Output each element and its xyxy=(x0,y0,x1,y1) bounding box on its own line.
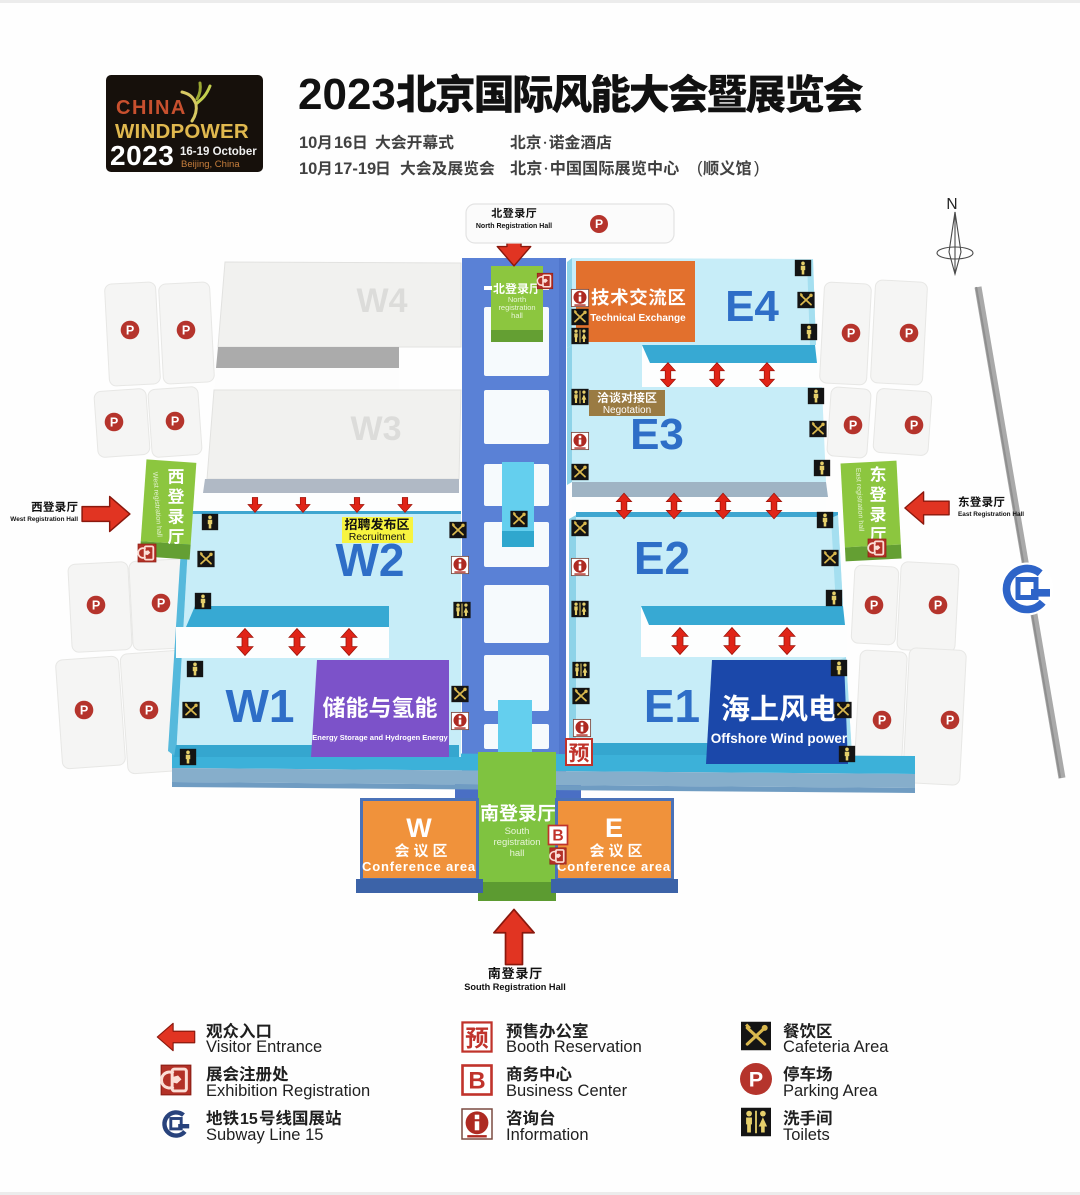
svg-text:South: South xyxy=(505,826,530,837)
svg-text:10: 10 xyxy=(299,134,317,152)
svg-text:North Registration Hall: North Registration Hall xyxy=(476,223,552,230)
svg-text:E1: E1 xyxy=(644,680,700,732)
svg-text:N: N xyxy=(946,196,957,213)
svg-text:W4: W4 xyxy=(357,282,408,320)
svg-text:(: ( xyxy=(697,159,703,177)
svg-text:Cafeteria Area: Cafeteria Area xyxy=(783,1038,889,1056)
svg-text:W3: W3 xyxy=(351,410,402,448)
svg-text:Recruitment: Recruitment xyxy=(349,531,406,543)
svg-text:South Registration Hall: South Registration Hall xyxy=(464,982,566,992)
svg-text:registration: registration xyxy=(494,837,541,848)
svg-text:Booth Reservation: Booth Reservation xyxy=(506,1038,642,1056)
svg-text:16: 16 xyxy=(334,134,352,152)
svg-text:Parking Area: Parking Area xyxy=(783,1082,878,1100)
svg-text:Information: Information xyxy=(506,1126,589,1144)
svg-text:Offshore Wind power: Offshore Wind power xyxy=(711,731,848,746)
svg-text:hall: hall xyxy=(510,848,525,859)
svg-text:hall: hall xyxy=(511,311,523,320)
svg-text:W1: W1 xyxy=(226,680,295,732)
svg-text:17-19: 17-19 xyxy=(334,160,376,178)
svg-text:W: W xyxy=(406,813,432,843)
svg-text:Business Center: Business Center xyxy=(506,1082,628,1100)
svg-text:Energy Storage and Hydrogen En: Energy Storage and Hydrogen Energy xyxy=(312,733,448,742)
svg-text:Negotation: Negotation xyxy=(603,405,651,416)
svg-text:E: E xyxy=(605,813,623,843)
svg-text:2023: 2023 xyxy=(110,140,174,171)
svg-text:E2: E2 xyxy=(634,532,690,584)
svg-text:Toilets: Toilets xyxy=(783,1126,830,1144)
svg-text:): ) xyxy=(754,159,760,177)
svg-text:Conference area: Conference area xyxy=(557,859,671,874)
svg-text:E4: E4 xyxy=(725,282,779,331)
svg-text:Beijing, China: Beijing, China xyxy=(181,159,240,170)
svg-text:West Registration Hall: West Registration Hall xyxy=(10,516,78,523)
svg-text:2023: 2023 xyxy=(298,70,396,119)
svg-text:Subway Line 15: Subway Line 15 xyxy=(206,1126,323,1144)
svg-text:Visitor Entrance: Visitor Entrance xyxy=(206,1038,322,1056)
svg-text:E3: E3 xyxy=(630,410,684,459)
svg-text:10: 10 xyxy=(299,160,317,178)
svg-text:East Registration Hall: East Registration Hall xyxy=(958,511,1024,518)
svg-text:Exhibition Registration: Exhibition Registration xyxy=(206,1082,370,1100)
svg-text:CHINA: CHINA xyxy=(116,97,187,119)
svg-text:Conference area: Conference area xyxy=(362,859,476,874)
svg-text:16-19 October: 16-19 October xyxy=(180,146,257,158)
svg-text:Technical Exchange: Technical Exchange xyxy=(590,313,686,324)
